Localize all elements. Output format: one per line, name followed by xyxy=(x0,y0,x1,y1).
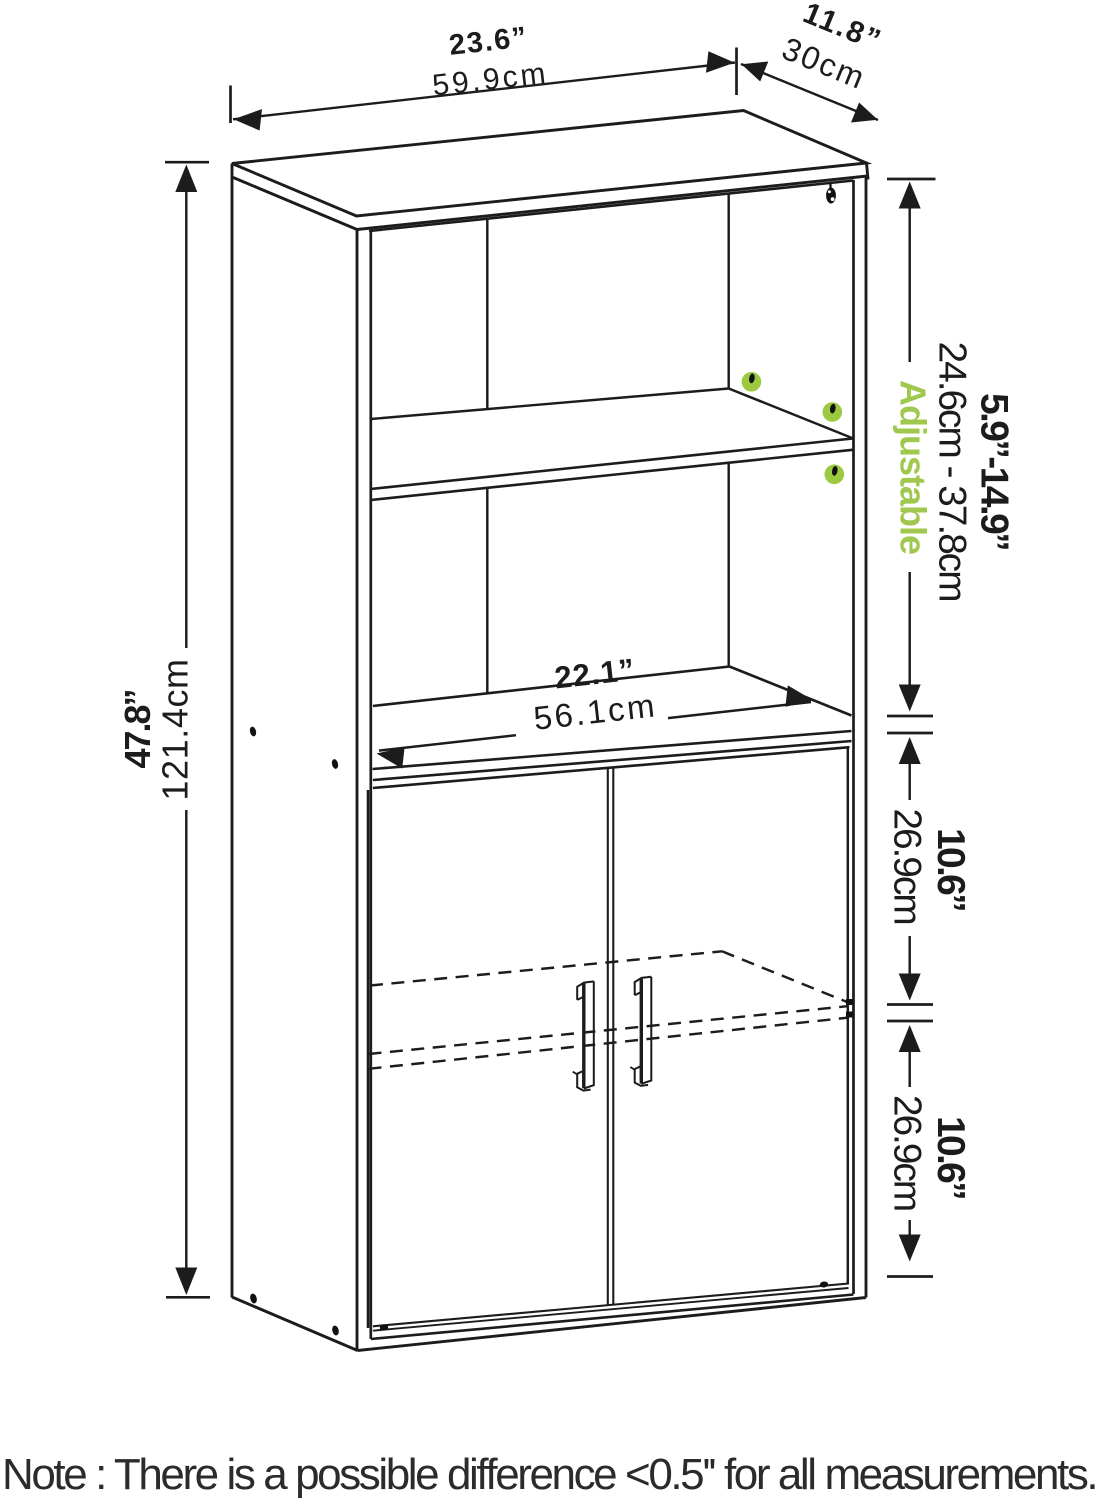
svg-text:Adjustable: Adjustable xyxy=(893,380,934,554)
svg-text:5.9”-14.9”: 5.9”-14.9” xyxy=(973,393,1016,549)
svg-text:26.9cm: 26.9cm xyxy=(886,1095,929,1210)
svg-text:121.4cm: 121.4cm xyxy=(155,658,196,800)
svg-text:23.6”: 23.6” xyxy=(447,21,529,62)
svg-text:Note : There is a possible dif: Note : There is a possible difference <0… xyxy=(2,1450,1096,1499)
svg-text:26.9cm: 26.9cm xyxy=(886,808,929,923)
svg-text:56.1cm: 56.1cm xyxy=(532,686,659,737)
svg-text:10.6”: 10.6” xyxy=(929,1116,972,1198)
svg-text:47.8”: 47.8” xyxy=(117,690,158,768)
svg-text:10.6”: 10.6” xyxy=(929,828,972,910)
svg-text:24.6cm - 37.8cm: 24.6cm - 37.8cm xyxy=(931,342,974,601)
svg-text:59.9cm: 59.9cm xyxy=(431,57,550,103)
